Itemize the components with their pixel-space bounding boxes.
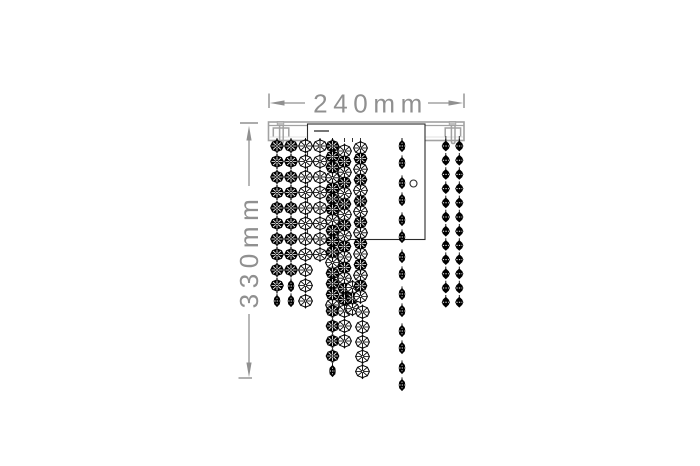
svg-text:240mm: 240mm [313,89,428,119]
svg-text:330mm: 330mm [234,194,264,309]
